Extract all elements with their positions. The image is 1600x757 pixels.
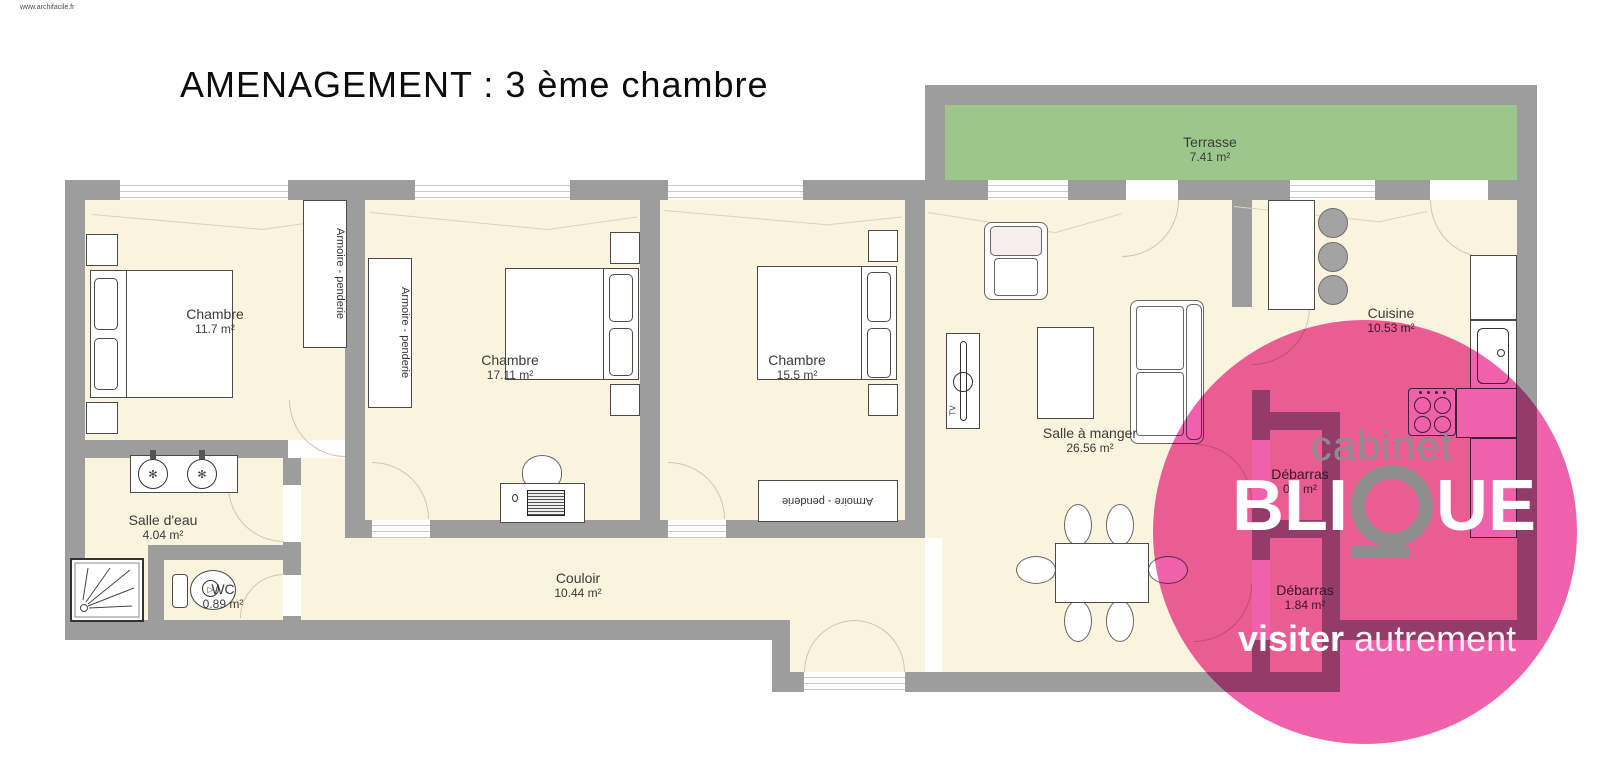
room-name: Chambre (768, 352, 826, 368)
vanity-faucet (199, 450, 205, 459)
wardrobe-label: Armoire - penderie (369, 259, 411, 407)
room-label-terrasse: Terrasse 7.41 m² (1183, 134, 1237, 165)
door-opening-terrace-salon (1126, 180, 1178, 200)
room-area: 11.7 m² (186, 322, 244, 337)
bed-pillow (867, 272, 891, 322)
room-label-salle-deau: Salle d'eau 4.04 m² (129, 512, 198, 543)
room-area: 7.41 m² (1183, 150, 1237, 165)
wall-chambre3-salon (905, 200, 925, 538)
room-name: Chambre (481, 352, 539, 368)
window-chambre2 (415, 180, 570, 200)
shower (70, 558, 144, 622)
room-name: Salle d'eau (129, 512, 198, 528)
room-area: 15.5 m² (768, 368, 826, 383)
wardrobe: Armoire - penderie (758, 480, 898, 522)
bar-counter (1268, 200, 1315, 310)
bar-stool (1318, 208, 1348, 238)
room-area: 4.04 m² (129, 528, 198, 543)
wall-terrace-top (925, 85, 1537, 105)
bed-pillow (609, 328, 633, 376)
window-chambre1 (120, 180, 288, 200)
dining-chair (1016, 556, 1056, 584)
wall-bathroom-right-a (283, 458, 301, 485)
room-label-chambre1: Chambre 11.7 m² (186, 306, 244, 337)
brand-left: BLI (1232, 470, 1348, 542)
bed-fold-line (861, 267, 862, 379)
entry-door-threshold (804, 672, 905, 692)
tv-knob (953, 372, 973, 392)
wall-chambre3-bottom-a (660, 520, 668, 538)
floor-plan-page: www.archifacile.fr AMENAGEMENT : 3 ème c… (0, 0, 1600, 757)
bar-stool (1318, 275, 1348, 305)
nightstand (610, 384, 640, 416)
door-opening-chambre2 (372, 520, 430, 538)
wardrobe: Armoire - penderie (303, 200, 347, 348)
bed-fold-line (126, 271, 127, 397)
page-title: AMENAGEMENT : 3 ème chambre (180, 64, 769, 106)
door-opening-wc (283, 575, 301, 616)
door-opening-chambre3 (668, 520, 726, 538)
armchair-seat (994, 258, 1038, 296)
bed-pillow (94, 338, 118, 390)
nightstand (86, 234, 118, 266)
nightstand (868, 230, 898, 262)
laptop (527, 490, 565, 516)
room-name: WC (203, 581, 244, 597)
wardrobe-label: Armoire - penderie (782, 495, 873, 507)
wall-chambre1-chambre2 (345, 200, 365, 538)
tagline-bold: visiter (1238, 618, 1344, 659)
coffee-table (1037, 327, 1094, 419)
vanity-faucet (150, 450, 156, 459)
wall-terrace-right (1517, 105, 1537, 180)
agency-tagline: visiter autrement (1238, 618, 1516, 660)
sofa-cushion (1136, 372, 1184, 436)
dining-chair (1106, 600, 1134, 642)
agency-logo-brand: BLI UE (1232, 468, 1536, 544)
vanity-sink: ✻ (138, 459, 168, 489)
page-background (0, 640, 772, 757)
brand-q-underline (1352, 546, 1410, 558)
room-name: Terrasse (1183, 134, 1237, 150)
wall-chambre2-chambre3 (640, 200, 660, 538)
room-name: Chambre (186, 306, 244, 322)
desk-mouse (512, 494, 518, 502)
wall-bathroom-right-c (283, 616, 301, 624)
window-chambre3 (668, 180, 803, 200)
kitchen-cabinet (1470, 255, 1517, 320)
toilet-tank (172, 574, 188, 608)
dining-chair (1106, 504, 1134, 546)
vanity-sink: ✻ (187, 459, 217, 489)
window-salon-2 (1290, 180, 1375, 200)
room-name: Cuisine (1367, 305, 1414, 321)
nightstand (86, 402, 118, 434)
brand-q-icon (1351, 465, 1433, 547)
agency-logo-word: cabinet (1311, 424, 1453, 468)
bed-pillow (94, 278, 118, 330)
room-label-couloir: Couloir 10.44 m² (554, 570, 601, 601)
tv-label: TV (949, 405, 958, 415)
room-area: 17.11 m² (481, 368, 539, 383)
dining-chair (1064, 504, 1092, 546)
passage-couloir-salon (925, 538, 942, 672)
wall-chambre3-bottom-b (726, 520, 905, 538)
dining-table (1055, 543, 1149, 603)
wall-chambre2-bottom-a (365, 520, 372, 538)
site-watermark: www.archifacile.fr (20, 4, 74, 11)
room-label-chambre2: Chambre 17.11 m² (481, 352, 539, 383)
window-salon (988, 180, 1068, 200)
wardrobe-label: Armoire - penderie (304, 201, 346, 347)
wall-entry-step (772, 620, 790, 692)
wall-wc-top (148, 545, 283, 560)
room-name: Couloir (554, 570, 601, 586)
bed-fold-line (603, 269, 604, 379)
brand-right: UE (1436, 470, 1536, 542)
door-opening-salle-deau (283, 485, 301, 542)
room-name: Salle à manger (1043, 425, 1137, 441)
wall-wc-left (148, 545, 164, 620)
door-opening-terrace-cuisine (1430, 180, 1488, 200)
bed-pillow (609, 274, 633, 322)
room-area: 26.56 m² (1043, 441, 1137, 456)
nightstand (610, 232, 640, 264)
sink-faucet-dot (1497, 349, 1505, 357)
wall-entry-side (790, 672, 804, 692)
armchair-back (990, 226, 1042, 256)
sofa-cushion (1136, 306, 1184, 370)
bar-stool (1318, 242, 1348, 272)
wardrobe: Armoire - penderie (368, 258, 412, 408)
tagline-light: autrement (1354, 618, 1516, 659)
room-label-chambre3: Chambre 15.5 m² (768, 352, 826, 383)
nightstand (868, 384, 898, 416)
room-label-salle-a-manger: Salle à manger 26.56 m² (1043, 425, 1137, 456)
bed-pillow (867, 328, 891, 378)
room-label-wc: WC 0.89 m² (203, 581, 244, 612)
dining-chair (1064, 600, 1092, 642)
wall-bathroom-right-b (283, 542, 301, 575)
shower-spray-icon (72, 560, 142, 620)
room-area: 10.44 m² (554, 586, 601, 601)
room-area: 0.89 m² (203, 597, 244, 612)
wall-bottom-left (65, 620, 772, 640)
wall-terrace-left (925, 105, 945, 180)
wall-salon-cuisine (1232, 200, 1252, 307)
